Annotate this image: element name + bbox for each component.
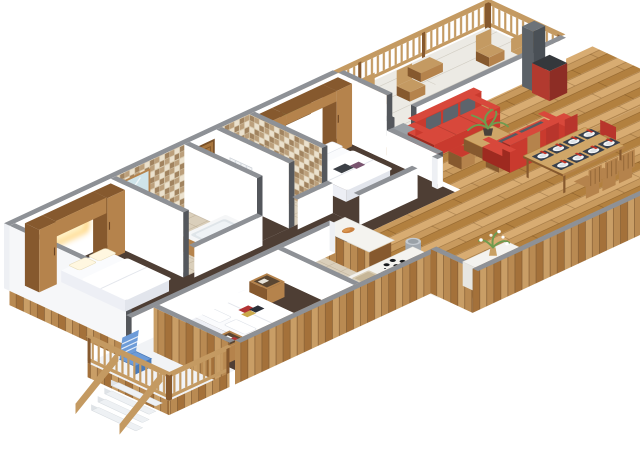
wood-stove (532, 55, 567, 101)
table-leg (527, 159, 529, 179)
table-leg (563, 174, 565, 194)
back-wall-end (4, 223, 10, 291)
isometric-floor-plan (0, 0, 640, 449)
scene-root (0, 0, 640, 435)
plant-pot (483, 128, 493, 135)
floor-plan-stage (0, 0, 640, 449)
